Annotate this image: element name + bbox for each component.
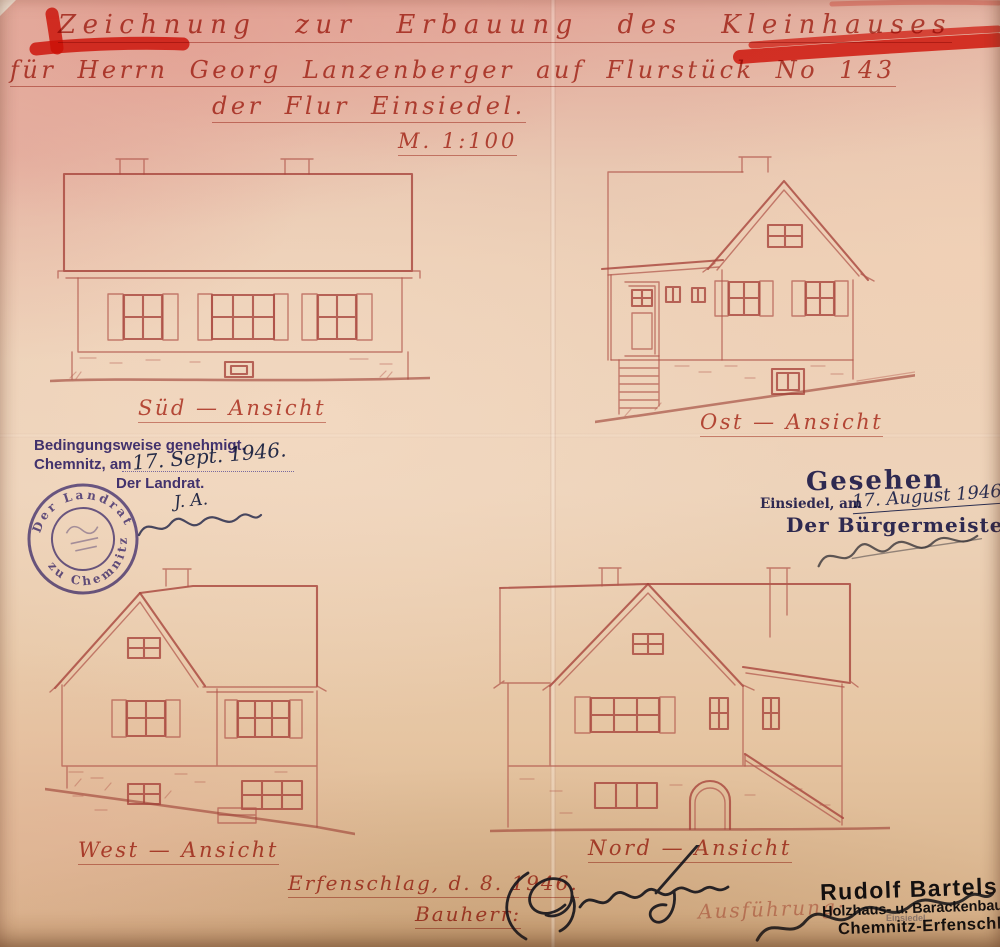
east-view-label: Ost — Ansicht bbox=[700, 410, 883, 434]
south-elevation-drawing bbox=[50, 150, 430, 395]
south-view-label-text: Süd — Ansicht bbox=[138, 396, 326, 423]
east-walls-door-windows bbox=[611, 225, 853, 414]
buergermeister-signature bbox=[811, 523, 988, 580]
west-view-label-text: West — Ansicht bbox=[78, 838, 279, 865]
west-view-label: West — Ansicht bbox=[78, 838, 279, 862]
crayon-underline-left bbox=[36, 14, 183, 49]
south-walls-windows bbox=[72, 278, 408, 379]
red-crayon-marks bbox=[0, 0, 1000, 120]
north-roof-and-chimneys bbox=[494, 568, 858, 690]
scanned-architectural-drawing: Zeichnung zur Erbauung des Kleinhauses f… bbox=[0, 0, 1000, 947]
east-view-label-text: Ost — Ansicht bbox=[700, 410, 883, 437]
south-view-label: Süd — Ansicht bbox=[138, 396, 326, 420]
landrat-round-seal: Der Landrat zu Chemnitz bbox=[11, 467, 156, 612]
west-elevation-drawing bbox=[45, 560, 355, 850]
client-signature bbox=[460, 845, 750, 945]
west-walls-windows bbox=[62, 638, 317, 827]
east-elevation-drawing bbox=[595, 148, 915, 428]
seen-stamp-place: Einsiedel, am bbox=[760, 496, 862, 512]
east-roof-and-chimney bbox=[602, 157, 874, 360]
crayon-underline-right bbox=[740, 2, 999, 57]
south-roof-and-chimneys bbox=[58, 159, 420, 278]
north-elevation-drawing bbox=[490, 555, 890, 850]
west-ground-line bbox=[45, 779, 355, 834]
contractor-signature bbox=[746, 881, 999, 947]
landrat-signature bbox=[135, 505, 265, 547]
north-ground-line bbox=[490, 828, 890, 831]
north-walls-windows bbox=[508, 634, 843, 829]
